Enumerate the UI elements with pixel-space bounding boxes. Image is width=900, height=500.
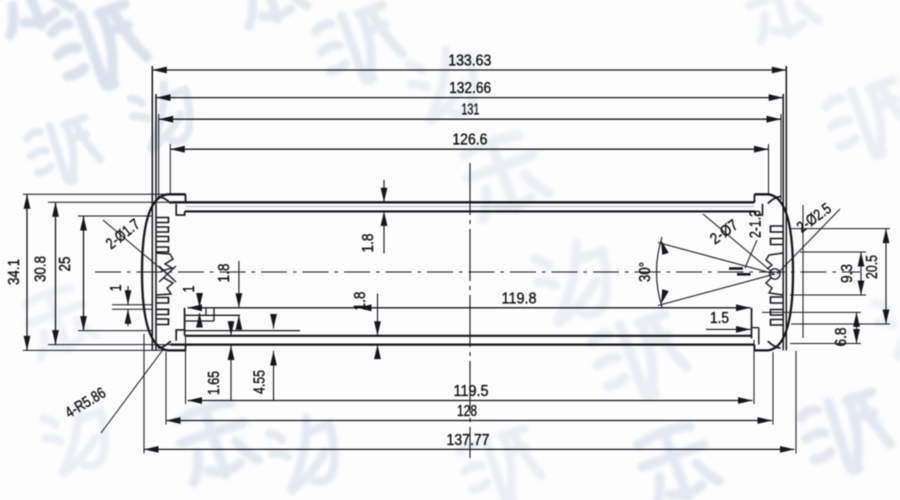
svg-text:1.5: 1.5 [710,310,729,327]
svg-text:4.55: 4.55 [252,370,269,394]
svg-text:131: 131 [461,102,479,119]
svg-text:1.65: 1.65 [206,371,223,395]
svg-text:25: 25 [57,257,74,272]
svg-text:126.6: 126.6 [452,132,487,149]
svg-text:1.8: 1.8 [360,234,377,253]
svg-text:1: 1 [108,285,125,292]
svg-text:34.1: 34.1 [6,259,23,285]
svg-text:119.5: 119.5 [454,383,489,400]
svg-text:137.77: 137.77 [447,432,490,449]
svg-text:30°: 30° [637,262,654,282]
svg-text:1.8: 1.8 [352,292,369,311]
svg-text:132.66: 132.66 [449,80,491,97]
svg-text:119.8: 119.8 [502,290,537,307]
svg-text:133.63: 133.63 [448,53,491,70]
svg-text:1: 1 [181,286,198,293]
svg-text:128: 128 [457,403,477,420]
svg-text:9.3: 9.3 [839,264,856,283]
svg-text:2-1.3: 2-1.3 [748,210,765,238]
svg-text:30.8: 30.8 [33,256,50,282]
svg-text:20.5: 20.5 [864,255,881,279]
svg-text:1.8: 1.8 [216,264,233,283]
